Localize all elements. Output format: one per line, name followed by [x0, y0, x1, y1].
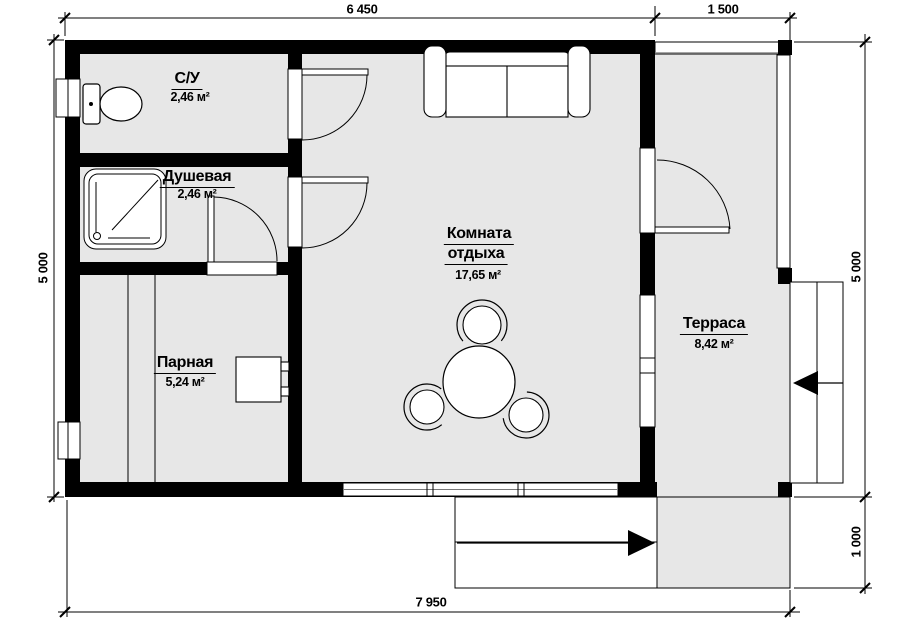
- window-lounge-bottom: [343, 483, 618, 496]
- room-label-lounge-line1: Комната: [444, 225, 514, 245]
- toilet-symbol: [83, 84, 142, 124]
- dim-right-porch: 1 000: [849, 526, 864, 557]
- table-symbol: [443, 346, 515, 418]
- room-area-terrace: 8,42 м²: [694, 337, 733, 351]
- stove-symbol: [236, 357, 289, 402]
- room-area-steam: 5,24 м²: [165, 375, 204, 389]
- window-wc-left: [56, 79, 80, 117]
- room-label-terrace: Терраса: [680, 315, 748, 335]
- room-label-wc: С/У: [171, 70, 202, 90]
- dim-bottom: 7 950: [415, 595, 446, 610]
- shower-tray-symbol: [84, 169, 166, 249]
- dim-top-terrace: 1 500: [707, 2, 738, 17]
- room-area-lounge: 17,65 м²: [455, 268, 501, 282]
- room-label-shower: Душевая: [160, 168, 235, 188]
- dim-right-main: 5 000: [849, 251, 864, 282]
- room-label-steam: Парная: [154, 354, 216, 374]
- floor-plan-drawing: [0, 0, 900, 628]
- window-lounge-right: [640, 295, 655, 427]
- sofa-symbol: [424, 46, 590, 117]
- floor-plan: С/У 2,46 м² Душевая 2,46 м² Парная 5,24 …: [0, 0, 900, 628]
- dim-left: 5 000: [36, 252, 51, 283]
- floor-fills: [65, 40, 790, 588]
- dim-top-main: 6 450: [346, 2, 377, 17]
- room-label-lounge-line2: отдыха: [445, 245, 508, 265]
- room-area-wc: 2,46 м²: [170, 90, 209, 104]
- room-area-shower: 2,46 м²: [177, 187, 216, 201]
- window-steam-left: [58, 422, 80, 459]
